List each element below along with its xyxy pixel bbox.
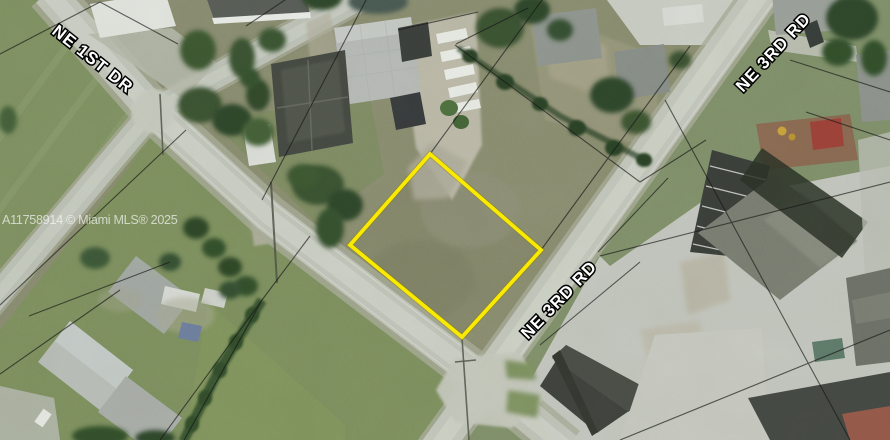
svg-text:A11758914 © Miami MLS® 2025: A11758914 © Miami MLS® 2025 (2, 213, 178, 227)
